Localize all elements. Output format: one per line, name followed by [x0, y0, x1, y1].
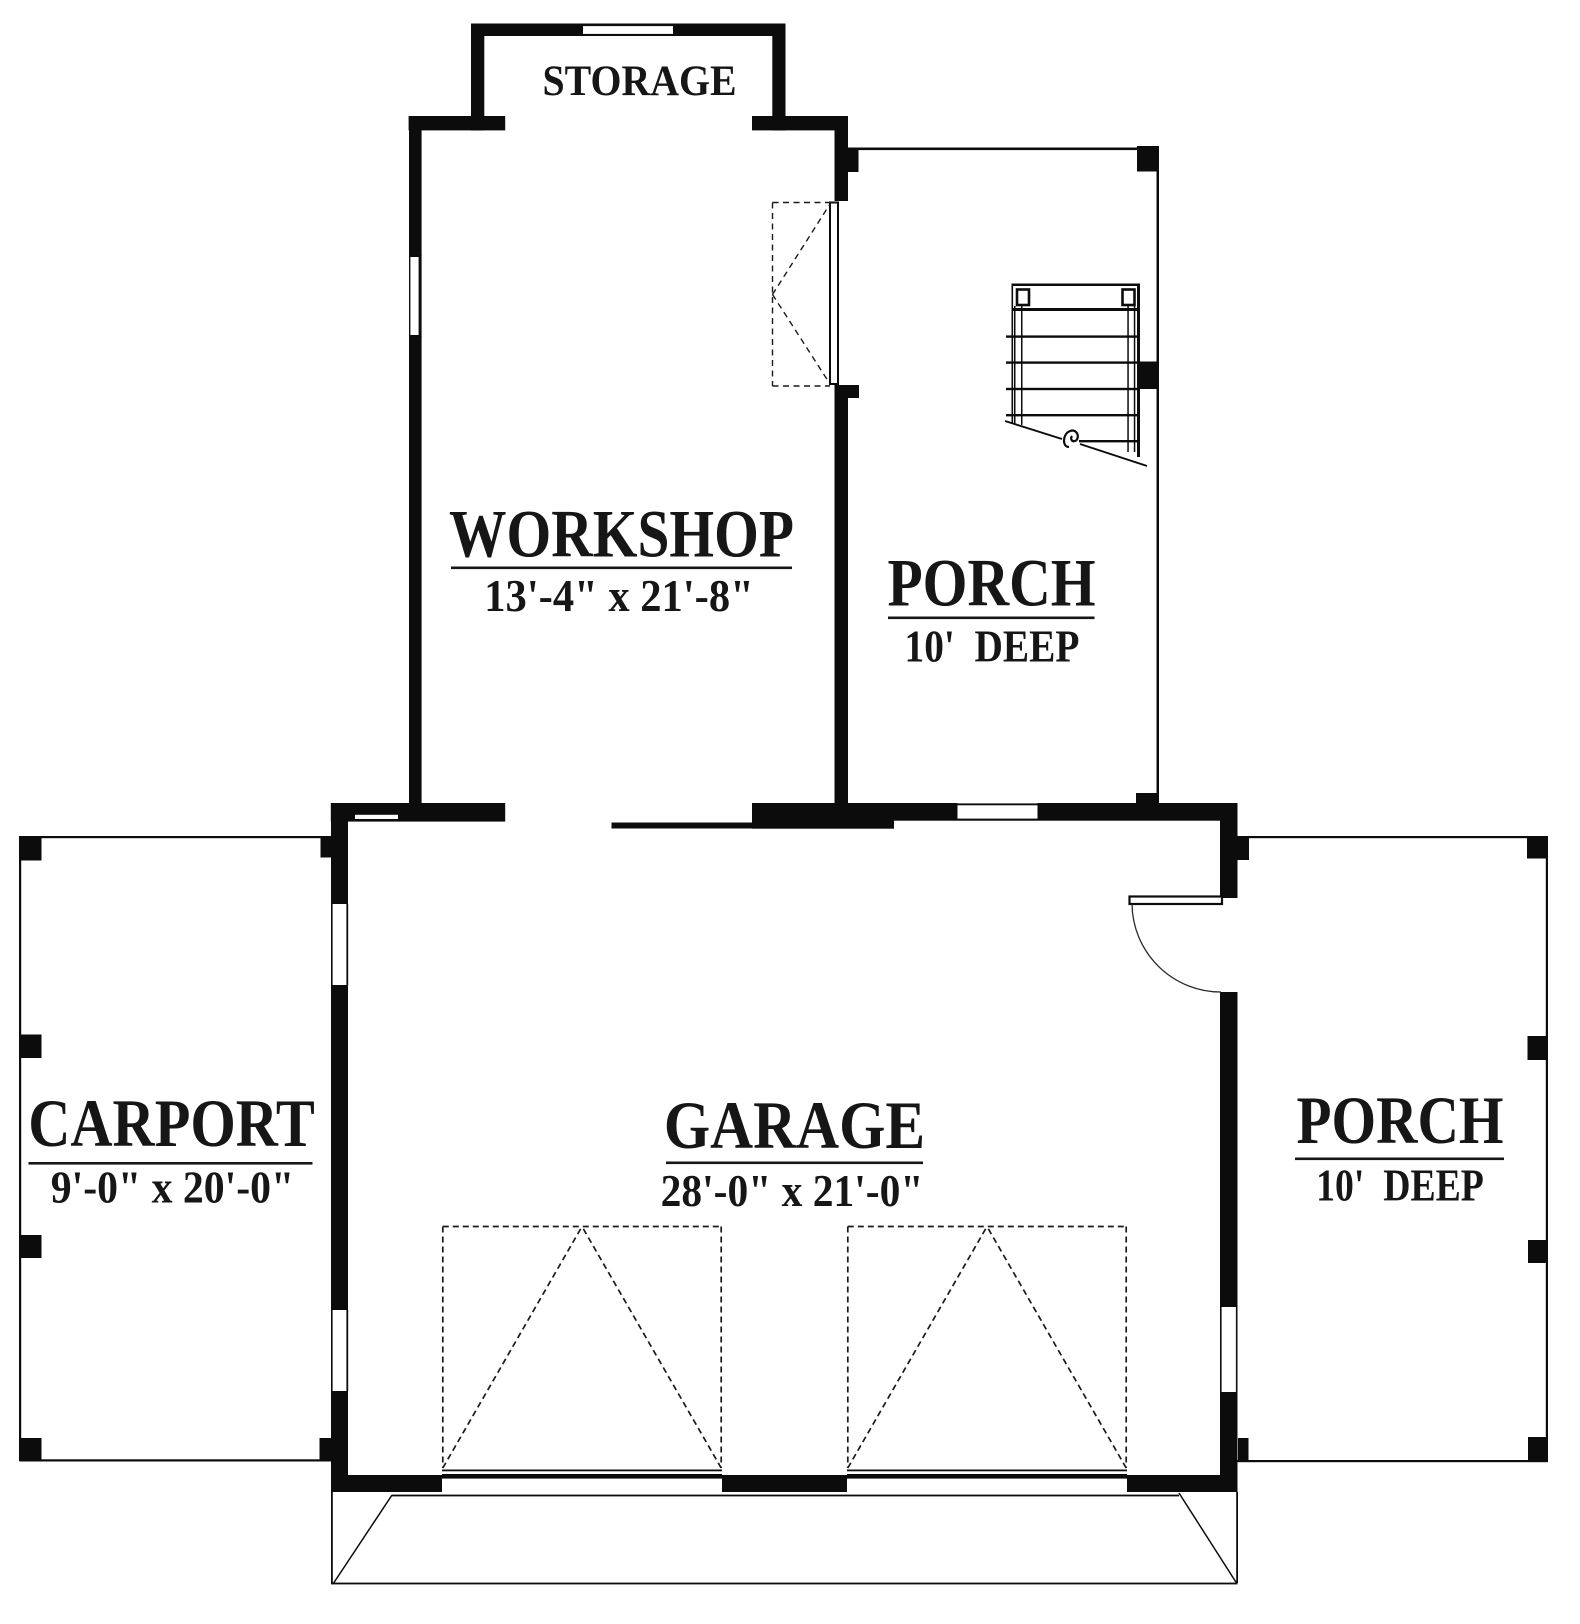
svg-text:STORAGE: STORAGE — [542, 57, 736, 105]
svg-text:PORCH: PORCH — [887, 545, 1095, 621]
svg-text:GARAGE: GARAGE — [664, 1087, 925, 1163]
svg-text:28'-0" x 21'-0": 28'-0" x 21'-0" — [661, 1166, 924, 1216]
svg-text:PORCH: PORCH — [1297, 1082, 1504, 1158]
svg-text:13'-4" x 21'-8": 13'-4" x 21'-8" — [484, 571, 753, 622]
svg-text:10' DEEP: 10' DEEP — [905, 622, 1080, 672]
svg-text:CARPORT: CARPORT — [28, 1086, 315, 1161]
svg-text:10' DEEP: 10' DEEP — [1316, 1161, 1484, 1211]
svg-text:WORKSHOP: WORKSHOP — [449, 496, 794, 572]
svg-text:9'-0" x 20'-0": 9'-0" x 20'-0" — [51, 1162, 294, 1213]
